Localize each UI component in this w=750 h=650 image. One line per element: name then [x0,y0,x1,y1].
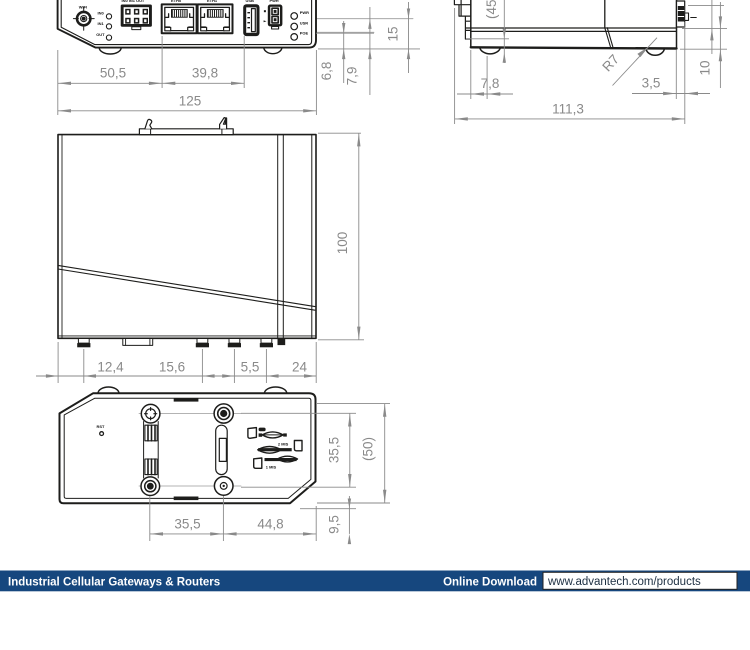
svg-text:IN0 IN1 OUT: IN0 IN1 OUT [122,0,145,3]
svg-text:3,5: 3,5 [642,76,661,91]
svg-text:125: 125 [179,94,202,109]
svg-text:35,5: 35,5 [327,437,342,463]
svg-text:12,4: 12,4 [97,360,124,375]
svg-text:44,8: 44,8 [257,517,283,532]
svg-text:RST: RST [97,424,105,429]
svg-text:100: 100 [335,232,350,255]
svg-text:PWR: PWR [270,0,279,3]
svg-text:15: 15 [386,26,401,41]
svg-text:35,5: 35,5 [174,517,200,532]
svg-text:IN0: IN0 [98,11,105,16]
svg-text:6,8: 6,8 [319,62,334,81]
svg-text:ETH0: ETH0 [171,0,182,3]
svg-text:9,5: 9,5 [327,515,342,534]
svg-text:Online Download: Online Download [443,577,537,589]
svg-text:PWR: PWR [300,10,309,15]
svg-text:39,8: 39,8 [192,66,218,81]
svg-text:Industrial Cellular Gateways &: Industrial Cellular Gateways & Routers [8,577,220,589]
svg-text:www.advantech.com/products: www.advantech.com/products [547,576,701,588]
svg-text:111,3: 111,3 [552,102,584,117]
svg-text:USB: USB [246,0,254,3]
svg-text:15,6: 15,6 [159,360,185,375]
svg-text:2 MIS: 2 MIS [278,441,289,446]
svg-text:7,8: 7,8 [481,76,500,91]
svg-text:(45): (45) [484,0,499,19]
svg-text:POE: POE [300,31,309,36]
svg-text:5,5: 5,5 [241,360,260,375]
svg-text:1 MIS: 1 MIS [266,465,277,470]
svg-text:USR: USR [300,20,308,25]
svg-text:OUT: OUT [96,32,105,37]
svg-text:ETH1: ETH1 [207,0,218,3]
svg-text:50,5: 50,5 [100,66,126,81]
svg-text:24: 24 [292,360,308,375]
svg-text:(50): (50) [361,437,376,461]
svg-text:7,9: 7,9 [345,67,360,86]
svg-text:IN1: IN1 [98,21,105,26]
svg-text:10: 10 [698,60,713,75]
svg-text:WIFI: WIFI [79,5,87,10]
